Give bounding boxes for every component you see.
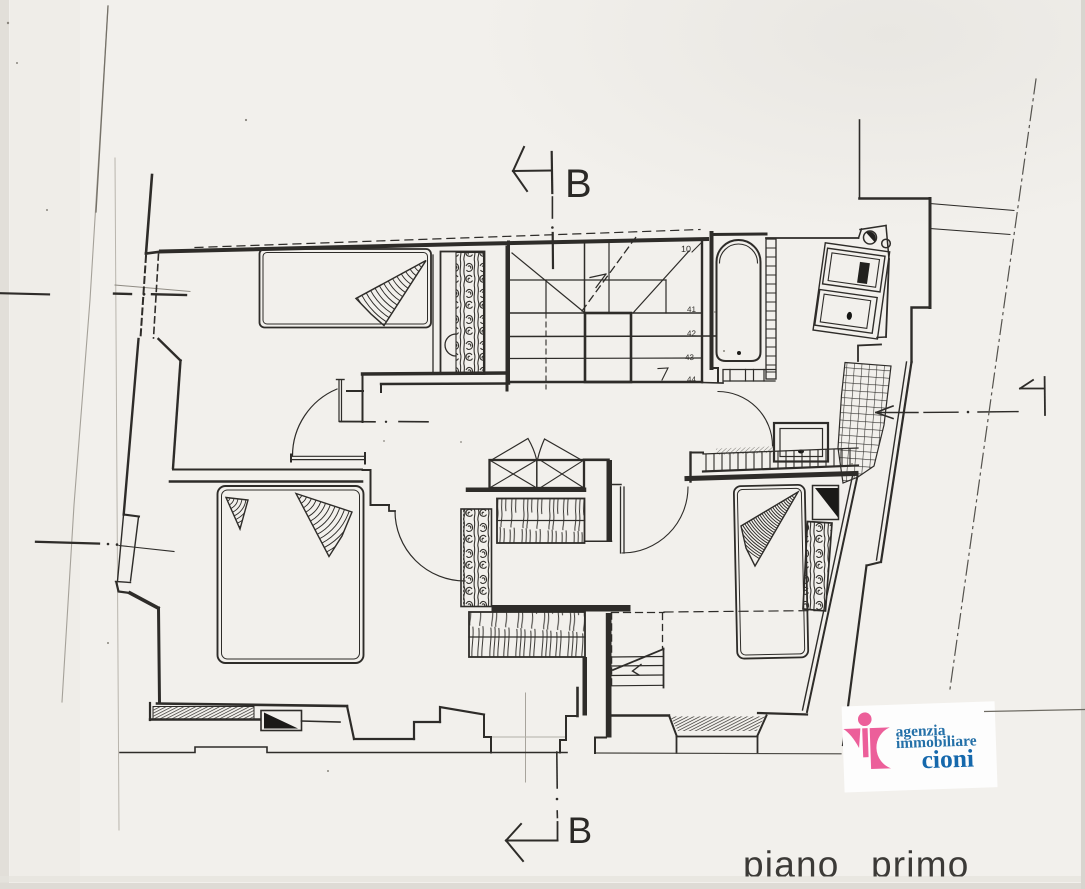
- svg-text:42: 42: [687, 329, 696, 338]
- svg-text:44: 44: [687, 375, 696, 384]
- svg-text:B: B: [565, 162, 592, 206]
- svg-text:B: B: [568, 810, 593, 851]
- svg-text:43: 43: [685, 353, 694, 362]
- svg-text:41: 41: [687, 305, 696, 314]
- svg-text:10: 10: [681, 244, 691, 254]
- svg-text:cioni: cioni: [921, 743, 974, 774]
